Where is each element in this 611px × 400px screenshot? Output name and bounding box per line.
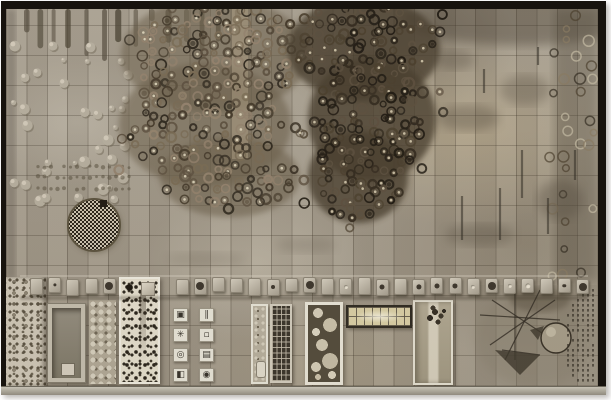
icon-tile-grid: ▣∥✳▫◎▤◧◉ [173, 308, 219, 386]
waffle-grid-panel [270, 304, 292, 383]
figure-blob [256, 361, 266, 378]
knob-row-shadow [20, 296, 588, 300]
recessed-frame-block [61, 363, 75, 376]
checkered-disc [68, 199, 122, 253]
photo-frame: ▣∥✳▫◎▤◧◉ [1, 1, 606, 395]
mural: ▣∥✳▫◎▤◧◉ [6, 9, 598, 386]
circles-panel [305, 302, 343, 385]
framed-square-icon: ▣ [173, 308, 188, 322]
bullseye-icon: ◎ [173, 348, 188, 362]
window-grid-panel [346, 305, 412, 328]
dot-circle-icon: ◉ [199, 368, 214, 382]
double-bars-icon: ∥ [199, 308, 214, 322]
speckled-column-panel [6, 277, 46, 386]
right-ring-cluster [288, 9, 447, 232]
half-filled-square-icon: ◧ [173, 368, 188, 382]
dark-mark-icon [125, 283, 134, 292]
figure-panel [413, 300, 453, 385]
sketch-panel [475, 285, 598, 386]
dotted-white-panel [119, 277, 160, 384]
bump-field [9, 41, 133, 208]
small-square-icon: ▫ [199, 328, 214, 342]
recessed-frame-panel [47, 303, 86, 383]
plinth [1, 386, 606, 395]
left-ring-cluster [114, 9, 309, 217]
hatched-square-icon: ▤ [199, 348, 214, 362]
photo-page: { "artwork": { "kind": "photo-of-ceramic… [0, 0, 611, 400]
panel-knob [141, 282, 155, 296]
ledge-highlight [20, 275, 588, 277]
asterisk-icon: ✳ [173, 328, 188, 342]
narrow-white-panel [251, 304, 268, 384]
pebble-panel [89, 300, 116, 384]
